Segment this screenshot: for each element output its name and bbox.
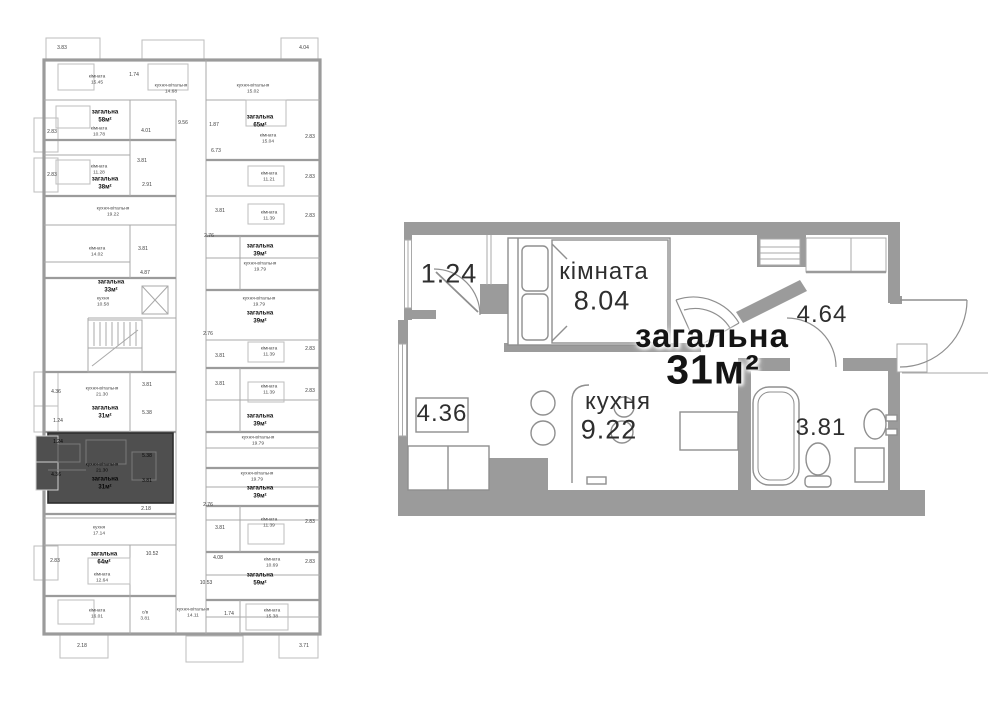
unit-area-label: загальна 39м² bbox=[247, 486, 274, 501]
room-label: 4.36 bbox=[51, 390, 61, 396]
room-label: 3.71 bbox=[299, 644, 309, 650]
room-label: 2.83 bbox=[305, 560, 315, 566]
room-label: 4.01 bbox=[141, 129, 151, 135]
room-label: кухня-вітальня 21.30 bbox=[86, 386, 119, 397]
room-label: кімната 11.39 bbox=[261, 517, 278, 528]
unit-area-label: загальна 39м² bbox=[247, 244, 274, 259]
room-label: кімната 11.39 bbox=[261, 346, 278, 357]
room-label: кухня-вітальня 19.79 bbox=[243, 296, 276, 307]
room-label: 4.08 bbox=[213, 556, 223, 562]
room-label: кухня-вітальня 19.79 bbox=[244, 261, 277, 272]
hall-wardrobe bbox=[806, 238, 886, 272]
bathtub bbox=[753, 387, 799, 485]
room-label: кімната 11.28 bbox=[91, 164, 108, 175]
room-label: 3.81 bbox=[142, 479, 152, 485]
room-label: 2.18 bbox=[141, 507, 151, 513]
room-label: кімната 15.04 bbox=[260, 133, 277, 144]
room-label: 4.64 bbox=[797, 301, 848, 329]
room-label: кімната 11.39 bbox=[261, 384, 278, 395]
room-label: 2.91 bbox=[142, 183, 152, 189]
room-label: кухня bbox=[585, 388, 651, 416]
closet bbox=[760, 239, 800, 265]
unit-area-label: загальна 39м² bbox=[247, 311, 274, 326]
toilet bbox=[805, 443, 831, 487]
room-label: 2.83 bbox=[305, 347, 315, 353]
room-label: 3.81 bbox=[215, 526, 225, 532]
room-label: кімната 12.64 bbox=[94, 572, 111, 583]
room-label: кімната 14.02 bbox=[89, 246, 106, 257]
room-label: с/в 3.81 bbox=[140, 610, 149, 621]
room-label: 3.81 bbox=[215, 209, 225, 215]
room-label: 2.83 bbox=[47, 130, 57, 136]
floorplan-page: 3.834.04кімната 15.451.74кухня-вітальня … bbox=[0, 0, 1000, 710]
unit-area-label: загальна 58м² bbox=[92, 110, 119, 125]
unit-area-label: загальна 39м² bbox=[247, 414, 274, 429]
room-label: 2.83 bbox=[50, 559, 60, 565]
room-label: 2.83 bbox=[305, 214, 315, 220]
room-label: 3.81 bbox=[137, 159, 147, 165]
room-label: 4.36 bbox=[417, 400, 468, 428]
room-label: кухня-вітальня 21.30 bbox=[86, 462, 119, 473]
room-label: 2.76 bbox=[204, 234, 214, 240]
room-label: 3.83 bbox=[57, 46, 67, 52]
wardrobe bbox=[408, 446, 489, 490]
room-label: 1.87 bbox=[209, 123, 219, 129]
room-label: 2.83 bbox=[305, 389, 315, 395]
room-label: 5.38 bbox=[142, 454, 152, 460]
unit-area-label: загальна 38м² bbox=[92, 177, 119, 192]
room-label: 9.56 bbox=[178, 121, 188, 127]
room-label: кімната 11.39 bbox=[261, 210, 278, 221]
room-label: 1.74 bbox=[224, 612, 234, 618]
room-label: 2.83 bbox=[305, 520, 315, 526]
room-label: кухня-вітальня 15.02 bbox=[237, 83, 270, 94]
entry-niche bbox=[897, 344, 927, 372]
room-label: кухня 10.58 bbox=[97, 296, 109, 307]
room-label: кухня-вітальня 19.79 bbox=[241, 471, 274, 482]
room-label: 1.74 bbox=[129, 73, 139, 79]
room-label: 3.81 bbox=[138, 247, 148, 253]
room-label: 2.83 bbox=[47, 173, 57, 179]
stairs bbox=[88, 320, 142, 372]
room-label: 10.53 bbox=[200, 581, 213, 587]
room-label: кімната 10.69 bbox=[264, 557, 281, 568]
room-label: кімната 15.38 bbox=[264, 608, 281, 619]
room-label: кімната 10.78 bbox=[91, 126, 108, 137]
total-area-title: 31м² bbox=[666, 347, 760, 394]
room-label: кухня 17.14 bbox=[93, 525, 105, 536]
room-label: 4.04 bbox=[299, 46, 309, 52]
unit-area-label: загальна 31м² bbox=[92, 406, 119, 421]
corridor bbox=[176, 60, 206, 634]
room-label: 2.76 bbox=[203, 332, 213, 338]
room-label: 4.87 bbox=[140, 271, 150, 277]
washing-machine bbox=[855, 448, 884, 482]
room-label: 2.83 bbox=[305, 135, 315, 141]
room-label: кімната 16.01 bbox=[89, 608, 106, 619]
building-outer-wall bbox=[44, 60, 320, 634]
room-label: 3.81 bbox=[215, 354, 225, 360]
unit-area-label: загальна 33м² bbox=[98, 280, 125, 295]
elevator bbox=[142, 286, 168, 314]
room-label: кухня-вітальня 19.22 bbox=[97, 206, 130, 217]
room-label: 10.52 bbox=[146, 552, 159, 558]
room-label: 1.24 bbox=[53, 419, 63, 425]
room-label: 3.81 bbox=[142, 383, 152, 389]
room-label: кухня-вітальня 19.79 bbox=[242, 435, 275, 446]
room-label: 1.24 bbox=[421, 259, 478, 290]
room-label: 3.81 bbox=[796, 414, 847, 442]
unit-area-label: загальна 31м² bbox=[92, 477, 119, 492]
room-label: 6.73 bbox=[211, 149, 221, 155]
room-label: 2.76 bbox=[203, 503, 213, 509]
plan-linework bbox=[0, 0, 1000, 710]
room-label: кімната bbox=[559, 258, 648, 286]
unit-dividers bbox=[44, 140, 320, 600]
room-label: 9.22 bbox=[581, 415, 638, 446]
room-label: кімната 15.45 bbox=[89, 74, 106, 85]
unit-area-label: загальна 65м² bbox=[247, 115, 274, 130]
room-label: 2.18 bbox=[77, 644, 87, 650]
room-label: 8.04 bbox=[574, 286, 631, 317]
unit-area-label: загальна 59м² bbox=[247, 573, 274, 588]
room-label: 4.36 bbox=[51, 473, 61, 479]
room-label: 3.81 bbox=[215, 382, 225, 388]
room-label: 5.38 bbox=[142, 411, 152, 417]
room-label: кухня-вітальня 14.68 bbox=[155, 83, 188, 94]
room-label: кімната 11.21 bbox=[261, 171, 278, 182]
room-label: кухня-вітальня 14.11 bbox=[177, 607, 210, 618]
room-label: 2.83 bbox=[305, 175, 315, 181]
unit-area-label: загальна 64м² bbox=[91, 552, 118, 567]
room-label: 1.24 bbox=[53, 440, 63, 446]
